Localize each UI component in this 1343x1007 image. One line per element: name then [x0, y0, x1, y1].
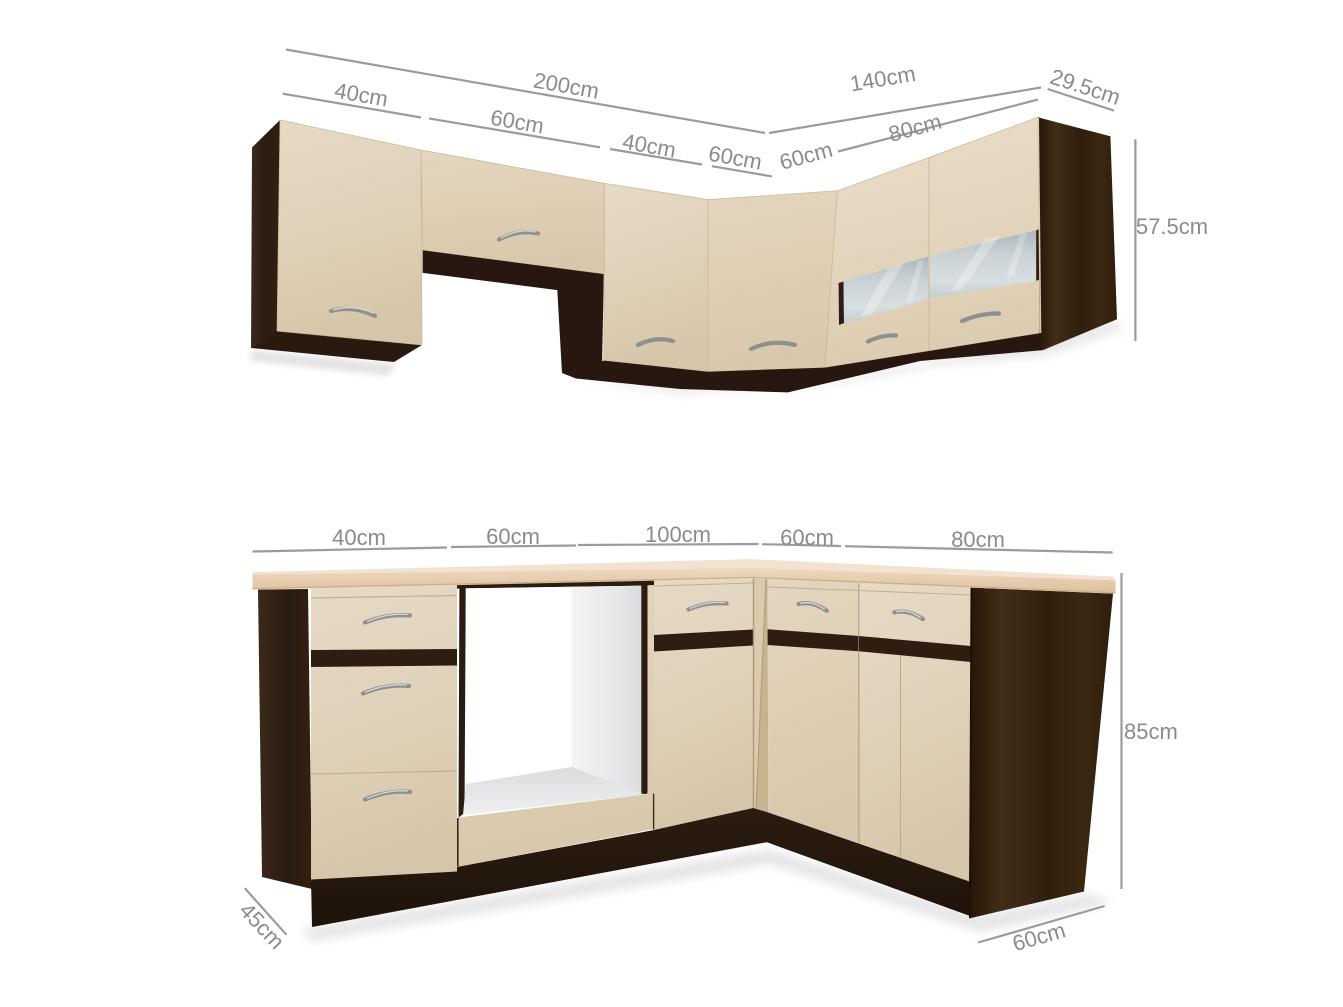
svg-text:80cm: 80cm	[951, 527, 1005, 552]
svg-text:60cm: 60cm	[780, 525, 834, 550]
svg-text:40cm: 40cm	[332, 525, 386, 550]
svg-text:60cm: 60cm	[486, 524, 540, 549]
svg-text:100cm: 100cm	[645, 522, 711, 547]
svg-text:85cm: 85cm	[1124, 719, 1178, 744]
svg-text:57.5cm: 57.5cm	[1136, 214, 1208, 239]
